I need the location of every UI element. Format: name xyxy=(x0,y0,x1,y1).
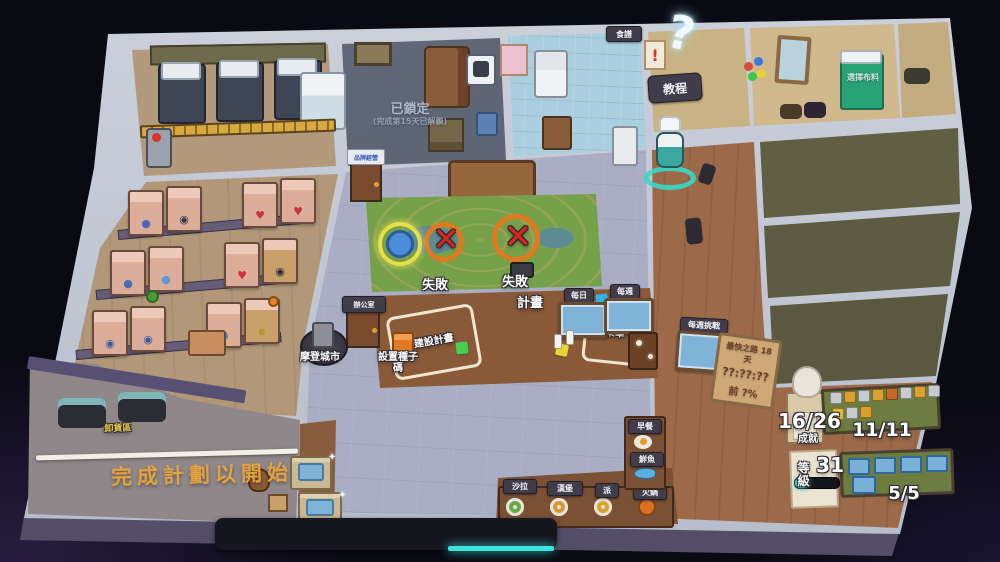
practice-bed[interactable] xyxy=(216,62,264,122)
daily-board-plaque: 每日 xyxy=(564,288,594,303)
appliance-crate[interactable]: ● xyxy=(148,246,184,292)
fish-icon xyxy=(634,468,656,479)
clothes-pile xyxy=(804,102,826,118)
practice-bed[interactable] xyxy=(158,64,206,124)
tutorial-sign[interactable]: 教程 xyxy=(647,72,703,104)
crate-icon-heart: ♥ xyxy=(237,269,247,282)
crate-icon-fan: ◉ xyxy=(275,265,285,278)
badge-icon xyxy=(844,391,856,403)
dish-plaque: 派 xyxy=(595,483,619,498)
sink-basin xyxy=(306,499,334,516)
paint-pot-blue xyxy=(754,57,763,66)
chef-character[interactable] xyxy=(644,116,698,198)
achievements-count: 16/26 xyxy=(778,410,838,432)
painting-frame xyxy=(926,455,948,472)
chef-body xyxy=(656,132,684,168)
fail-x-icon: ✕ xyxy=(426,222,466,258)
level-label: 等級 xyxy=(792,462,815,489)
speedrun-percent: 前 ?% xyxy=(728,382,759,401)
badge-icon xyxy=(914,386,926,398)
dish-plate-salad xyxy=(506,498,524,516)
weekly-board-screen[interactable] xyxy=(604,298,654,334)
prep-counter[interactable] xyxy=(612,126,638,166)
fail-label-left: 失敗 xyxy=(413,279,457,294)
luggage-cart[interactable] xyxy=(118,392,166,422)
appliance-crate[interactable]: ◉ xyxy=(262,238,298,284)
fail-label-right: 失敗 xyxy=(493,276,537,291)
painting-frame xyxy=(852,476,876,494)
small-table[interactable] xyxy=(188,330,226,356)
badge-icon xyxy=(858,390,870,402)
locked-room-subtitle: (完成第15天已解鎖) xyxy=(346,116,474,127)
bed-pillow xyxy=(161,62,201,80)
alert-exclamation: ! xyxy=(651,46,658,65)
painting-frame xyxy=(900,456,922,473)
bottom-bar-accent xyxy=(448,546,554,551)
dish-plate-pie xyxy=(594,498,612,516)
door-knob xyxy=(374,182,379,187)
badges-count: 11/11 xyxy=(850,420,914,441)
alert-poster[interactable]: ! xyxy=(644,40,666,70)
food-poster xyxy=(500,44,528,76)
city-podium-machine xyxy=(312,322,334,348)
bed-hint-label: 選擇布料 xyxy=(844,72,882,83)
blue-bin[interactable] xyxy=(476,112,498,136)
paintings-count: 5/5 xyxy=(882,484,926,504)
milk-bottle xyxy=(554,334,562,349)
weekly-board-plaque: 每週 xyxy=(610,284,640,299)
dish-plaque: 漢堡 xyxy=(547,481,583,496)
game-scene: ● ◉ ♥ ♥ ● ● ♥ ◉ ◉ ◉ ● ▪ ✕ ✕ 建設計畫 菜單 xyxy=(0,0,1000,562)
level-display: 等級 31 xyxy=(792,454,844,489)
dish-plaque: 早餐 xyxy=(628,419,662,434)
coffee-cup xyxy=(646,352,655,361)
appliance-crate[interactable]: ◉ xyxy=(166,186,202,232)
dish-plate-burger xyxy=(550,498,568,516)
mirror[interactable] xyxy=(774,35,811,85)
small-crate xyxy=(268,494,288,512)
heater-red-button xyxy=(152,133,161,142)
franchise-door-sign-text: 品牌經營 xyxy=(354,153,378,162)
badge-icon xyxy=(928,385,940,397)
map-run-disc[interactable] xyxy=(386,230,414,258)
level-value: 31 xyxy=(816,454,844,476)
crate-icon-face: ◉ xyxy=(179,213,189,226)
statue-head xyxy=(792,366,822,398)
dishwasher-door xyxy=(473,61,489,77)
door-knob xyxy=(372,328,377,333)
paint-pot-green xyxy=(748,72,757,81)
speedrun-time: ??:??:?? xyxy=(721,365,769,384)
fail-x-icon: ✕ xyxy=(496,218,540,256)
appliance-crate[interactable]: ◉ xyxy=(92,310,128,356)
badge-icon xyxy=(886,388,898,400)
sparkle-icon: ✦ xyxy=(338,490,346,501)
painting-frame xyxy=(874,457,896,474)
kitchen-desk[interactable] xyxy=(542,116,572,150)
franchise-door-sign: 品牌經營 xyxy=(347,149,385,165)
crate-icon-grid: ◉ xyxy=(105,337,115,350)
milk-bottle xyxy=(566,330,574,345)
crate-icon-label: ▪ xyxy=(258,325,265,338)
speedrun-route: 最快之路 18 天 xyxy=(721,340,776,369)
badge-icon xyxy=(860,406,872,418)
corner-room-items xyxy=(904,68,930,84)
speedrun-sign[interactable]: 最快之路 18 天 ??:??:?? 前 ?% xyxy=(709,332,782,410)
badge-icon xyxy=(900,387,912,399)
appliance-crate[interactable]: ● xyxy=(110,250,146,296)
plan-table-title: 計畫 xyxy=(508,297,552,312)
potted-plant xyxy=(146,290,159,303)
paint-pot-red xyxy=(744,62,753,71)
picture-frame xyxy=(354,42,392,66)
crate-icon-water: ● xyxy=(141,217,151,230)
appliance-crate[interactable]: ♥ xyxy=(224,242,260,288)
badge-icon xyxy=(846,407,858,419)
orange-lamp xyxy=(268,296,279,307)
seed-station-label: 設置種子碼 xyxy=(374,352,422,374)
achievements-label: 成就 xyxy=(790,434,826,445)
luggage-cart[interactable] xyxy=(58,398,106,428)
crate-icon-bottle: ● xyxy=(161,273,171,286)
crate-icon-water: ● xyxy=(123,277,133,290)
locked-room-title: 已鎖定 xyxy=(358,98,462,117)
clothes-pile xyxy=(780,104,802,119)
city-podium-label: 摩登城市 xyxy=(298,352,342,363)
breakfast-egg-yolk xyxy=(640,438,647,445)
chef-hat-icon xyxy=(659,116,681,132)
chef-highlight-ring xyxy=(644,166,696,190)
painting-frame xyxy=(848,458,870,475)
appliance-crate[interactable]: ● xyxy=(128,190,164,236)
sparkle-icon: ✦ xyxy=(328,452,336,463)
green-bed-pillow xyxy=(840,50,882,64)
office-door-sign: 辦公室 xyxy=(342,296,386,313)
appliance-crate[interactable]: ♥ xyxy=(242,182,278,228)
boots-item[interactable] xyxy=(685,217,704,245)
dish-plate-hotpot xyxy=(638,498,656,516)
paint-pot-yellow xyxy=(757,69,766,78)
dish-plaque: 沙拉 xyxy=(503,479,537,494)
sticky-note-green[interactable] xyxy=(455,341,468,354)
appliance-crate[interactable]: ♥ xyxy=(280,178,316,224)
coffee-stand[interactable] xyxy=(628,332,658,370)
badge-icon xyxy=(872,389,884,401)
fridge[interactable] xyxy=(534,50,568,98)
badge-icon xyxy=(830,392,842,404)
crate-icon-heart: ♥ xyxy=(293,205,303,218)
blueprint-label: 建設計畫 xyxy=(413,333,454,351)
unload-zone-label: 卸貨區 xyxy=(88,423,148,435)
coffee-cup xyxy=(634,338,644,348)
bed-pillow xyxy=(219,60,259,78)
crate-icon-grid: ◉ xyxy=(143,333,153,346)
appliance-crate[interactable]: ◉ xyxy=(130,306,166,352)
crate-icon-heart: ♥ xyxy=(255,209,265,222)
dish-plaque: 鮮魚 xyxy=(630,452,664,467)
recipes-sign: 食譜 xyxy=(606,26,642,42)
